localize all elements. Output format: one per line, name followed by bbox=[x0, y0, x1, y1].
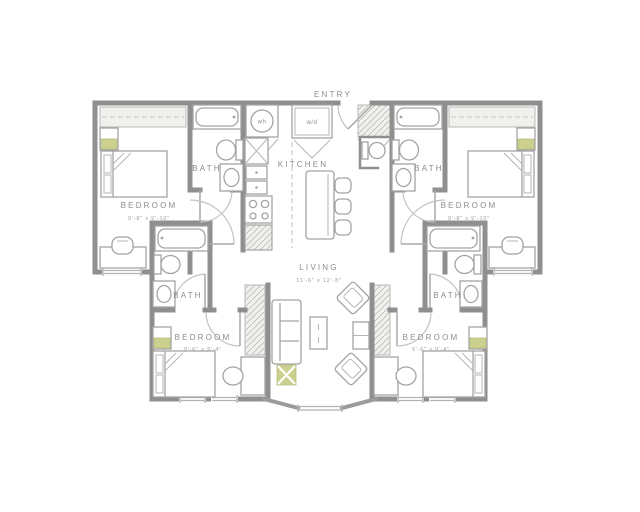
toilet-entry-niche bbox=[362, 142, 385, 159]
toilet-ml bbox=[154, 255, 180, 274]
sink-tl bbox=[220, 164, 243, 191]
bedroom-tl-label: BEDROOM bbox=[121, 201, 178, 210]
range-stove bbox=[245, 196, 272, 223]
nightstand-bl bbox=[153, 327, 171, 349]
end-table bbox=[277, 365, 296, 385]
window-bedroom-br-1 bbox=[397, 395, 424, 403]
bay-window-living bbox=[298, 405, 342, 413]
bath-tr-label: BATH bbox=[414, 164, 444, 173]
nightstand-br bbox=[469, 327, 487, 349]
bedroom-tr-label: BEDROOM bbox=[441, 201, 498, 210]
lounge-chair-2 bbox=[334, 352, 368, 386]
desk-tl bbox=[100, 237, 146, 268]
sofa bbox=[272, 300, 301, 364]
window-bedroom-tr bbox=[493, 268, 533, 276]
kitchen-fixtures: wh w/d bbox=[245, 105, 351, 250]
bathtub-tr bbox=[394, 105, 442, 129]
bed-br bbox=[423, 351, 485, 397]
washer-dryer-label: w/d bbox=[306, 120, 318, 126]
toilet-tl bbox=[217, 140, 244, 160]
bed-bl bbox=[153, 351, 215, 397]
floor-plan-page: wh w/d bbox=[0, 0, 640, 512]
floor-plan-drawing: wh w/d bbox=[0, 0, 640, 512]
entry-label: ENTRY bbox=[314, 90, 352, 99]
sink-tr bbox=[392, 164, 415, 191]
bedroom-br-dims: 9'-6" x 9'-4" bbox=[412, 347, 450, 353]
bath-tr-door bbox=[403, 190, 435, 222]
toilet-mr bbox=[455, 255, 481, 274]
living-furniture bbox=[272, 281, 370, 386]
bed-tl bbox=[101, 151, 167, 197]
kitchen-label: KITCHEN bbox=[278, 160, 329, 169]
bath-tl-label: BATH bbox=[192, 164, 222, 173]
bedroom-tr-dims: 9'-8" x 9'-10" bbox=[448, 216, 490, 222]
desk-bl bbox=[223, 357, 265, 395]
bedroom-bl-dims: 9'-6" x 9'-4" bbox=[184, 347, 222, 353]
lounge-chair-1 bbox=[336, 281, 370, 315]
living-dims: 11'-6" x 12'-8" bbox=[296, 278, 341, 284]
nightstand-tr bbox=[517, 128, 535, 150]
bedroom-bl-label: BEDROOM bbox=[175, 333, 232, 342]
closet-bedroom-bl bbox=[245, 285, 265, 355]
bedroom-br-label: BEDROOM bbox=[403, 333, 460, 342]
side-table bbox=[353, 322, 369, 349]
toilet-tr bbox=[392, 140, 419, 160]
closet-entry bbox=[358, 105, 390, 137]
sink-ml bbox=[153, 281, 175, 307]
nightstand-tl bbox=[100, 128, 118, 150]
bathtub-ml bbox=[155, 226, 208, 251]
window-bedroom-tl bbox=[102, 268, 142, 276]
living-label: LIVING bbox=[299, 263, 338, 272]
bathtub-mr bbox=[427, 226, 480, 251]
coffee-table bbox=[310, 317, 327, 349]
dishwasher bbox=[246, 166, 267, 194]
sink-mr bbox=[460, 281, 482, 307]
kitchen-island bbox=[306, 171, 334, 239]
kitchen-sink bbox=[245, 138, 268, 164]
bed-tr bbox=[468, 151, 534, 197]
desk-tr bbox=[489, 237, 535, 268]
bathtub-tl bbox=[193, 105, 241, 129]
island-stools bbox=[335, 178, 351, 235]
washer-dryer: w/d bbox=[292, 105, 332, 158]
desk-br bbox=[374, 357, 416, 395]
water-heater-label: wh bbox=[257, 120, 267, 126]
refrigerator bbox=[245, 225, 272, 250]
bath-ml-label: BATH bbox=[173, 291, 203, 300]
bedroom-tl-dims: 9'-8" x 9'-10" bbox=[128, 216, 170, 222]
bath-mr-label: BATH bbox=[433, 291, 463, 300]
bath-tl-door bbox=[200, 190, 232, 222]
